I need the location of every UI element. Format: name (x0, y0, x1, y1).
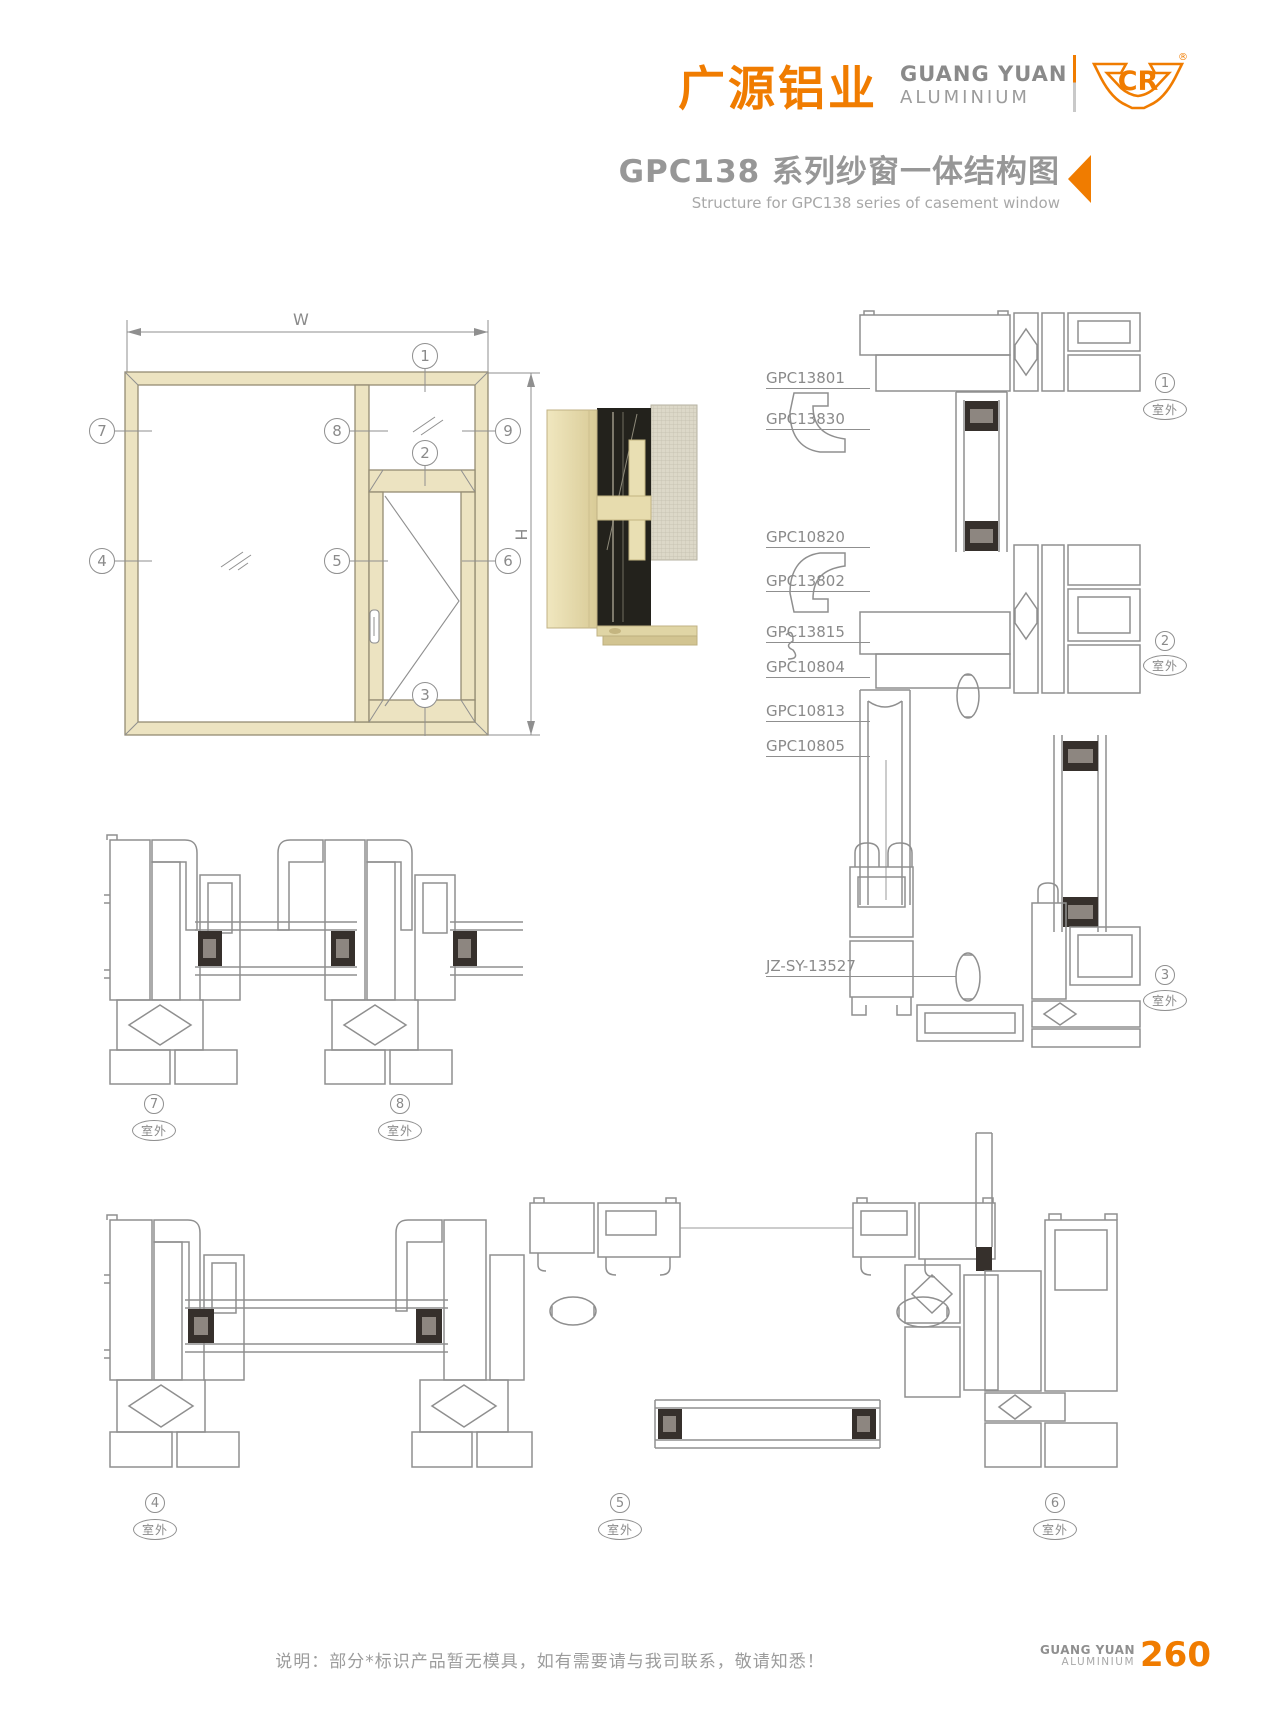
profile-3d-render (545, 400, 700, 650)
brand-logo-english-line2: ALUMINIUM (900, 87, 1030, 108)
part-label-gpc10820: GPC10820 (766, 528, 870, 548)
detail-5-number: 5 (610, 1493, 630, 1513)
dimension-height-label: H (512, 528, 531, 540)
horizontal-section-4-5-6-drawing (90, 1125, 1170, 1485)
detail-1-number: 1 (1155, 373, 1175, 393)
part-label-gpc10804: GPC10804 (766, 658, 870, 678)
horizontal-section-7-8-drawing (95, 755, 525, 1095)
emblem-letters: CR (1118, 66, 1159, 97)
registered-mark: ® (1178, 52, 1188, 63)
callout-1: 1 (412, 343, 438, 369)
callout-9: 9 (495, 418, 521, 444)
footer-brand-line2: ALUMINIUM (1030, 1657, 1135, 1668)
callout-6: 6 (495, 548, 521, 574)
callout-3: 3 (412, 682, 438, 708)
page-subtitle: Structure for GPC138 series of casement … (600, 194, 1060, 212)
callout-7: 7 (89, 418, 115, 444)
part-label-gpc10805: GPC10805 (766, 737, 870, 757)
part-label-gpc13802: GPC13802 (766, 572, 870, 592)
detail-2-number: 2 (1155, 631, 1175, 651)
part-label-gpc13801: GPC13801 (766, 369, 870, 389)
brand-logo-english-line1: GUANG YUAN (900, 62, 1067, 86)
page-number: 260 (1140, 1635, 1211, 1675)
part-label-gpc10813: GPC10813 (766, 702, 870, 722)
logo-divider (1073, 55, 1076, 112)
dimension-width-label: W (293, 310, 309, 329)
detail-6-outdoor-label: 室外 (1033, 1519, 1077, 1540)
window-elevation-drawing (85, 280, 545, 755)
catalog-page: 广源铝业 GUANG YUAN ALUMINIUM CR ® GPC138 系列… (0, 0, 1277, 1721)
footer-brand: GUANG YUAN ALUMINIUM (1030, 1644, 1135, 1668)
footer-brand-line1: GUANG YUAN (1030, 1644, 1135, 1657)
detail-4-number: 4 (145, 1493, 165, 1513)
brand-logo-chinese: 广源铝业 (678, 50, 878, 119)
detail-4-outdoor-label: 室外 (133, 1519, 177, 1540)
footer-note: 说明：部分*标识产品暂无模具，如有需要请与我司联系，敬请知悉！ (0, 1647, 1100, 1672)
detail-2-outdoor-label: 室外 (1143, 655, 1187, 676)
part-label-jz-sy-13527: JZ-SY-13527 (766, 957, 956, 977)
page-title: GPC138 系列纱窗一体结构图 (600, 146, 1060, 191)
detail-7-number: 7 (144, 1094, 164, 1114)
callout-2: 2 (412, 440, 438, 466)
detail-3-outdoor-label: 室外 (1143, 990, 1187, 1011)
part-label-gpc13830: GPC13830 (766, 410, 870, 430)
callout-8: 8 (324, 418, 350, 444)
callout-4: 4 (89, 548, 115, 574)
detail-6-number: 6 (1045, 1493, 1065, 1513)
part-label-gpc13815: GPC13815 (766, 623, 870, 643)
company-emblem-icon: CR ® (1088, 50, 1188, 112)
callout-5: 5 (324, 548, 350, 574)
detail-5-outdoor-label: 室外 (598, 1519, 642, 1540)
detail-3-number: 3 (1155, 965, 1175, 985)
detail-1-outdoor-label: 室外 (1143, 399, 1187, 420)
title-arrow-icon (1068, 155, 1091, 203)
detail-8-number: 8 (390, 1094, 410, 1114)
